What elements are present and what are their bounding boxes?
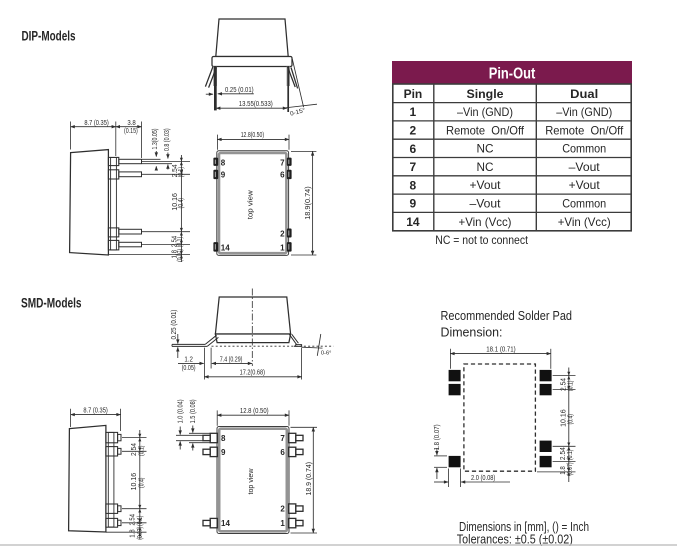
svg-text:Dimension:: Dimension: [441, 324, 503, 339]
svg-text:2.0 (0.08): 2.0 (0.08) [471, 475, 495, 482]
svg-text:(0.1): (0.1) [567, 450, 574, 461]
svg-text:2.54: 2.54 [131, 443, 138, 456]
svg-text:14: 14 [221, 519, 230, 528]
svg-text:+Vin (Vcc): +Vin (Vcc) [459, 215, 512, 229]
svg-text:1.8 (0.07): 1.8 (0.07) [434, 424, 441, 450]
svg-text:(0.1): (0.1) [177, 237, 184, 248]
svg-text:+Vout: +Vout [470, 178, 502, 192]
svg-text:14: 14 [406, 215, 420, 229]
svg-text:–Vin (GND): –Vin (GND) [556, 105, 612, 119]
svg-text:17.2(0.68): 17.2(0.68) [240, 369, 265, 376]
svg-text:(0.1): (0.1) [568, 381, 575, 392]
svg-text:1: 1 [280, 519, 285, 528]
svg-text:(0.07): (0.07) [137, 527, 144, 540]
svg-text:Recommended Solder Pad: Recommended Solder Pad [441, 308, 573, 323]
svg-text:Dual: Dual [570, 87, 598, 101]
svg-text:Remote On/Off: Remote On/Off [545, 123, 624, 137]
svg-text:Pin: Pin [404, 87, 423, 101]
svg-text:Remote On/Off: Remote On/Off [446, 123, 525, 137]
svg-text:1: 1 [280, 243, 285, 252]
svg-text:6: 6 [280, 448, 285, 457]
svg-text:8: 8 [410, 178, 417, 192]
svg-text:18.9 (0.74): 18.9 (0.74) [306, 462, 313, 496]
svg-text:3.8: 3.8 [127, 120, 135, 127]
svg-text:–Vout: –Vout [470, 197, 502, 211]
svg-text:12.8 (0.50): 12.8 (0.50) [240, 408, 269, 415]
svg-text:(0.4): (0.4) [138, 478, 145, 489]
svg-text:0.25 (0.01): 0.25 (0.01) [171, 310, 178, 340]
svg-text:1.3(0.05): 1.3(0.05) [152, 129, 159, 150]
svg-text:9: 9 [410, 197, 417, 211]
svg-text:DIP-Models: DIP-Models [22, 28, 76, 43]
svg-text:2.54: 2.54 [130, 514, 137, 526]
svg-text:(0.4): (0.4) [178, 198, 185, 209]
svg-text:(0.15): (0.15) [124, 128, 138, 135]
svg-text:SMD-Models: SMD-Models [21, 296, 82, 311]
svg-text:2: 2 [410, 124, 417, 138]
svg-text:7: 7 [280, 434, 285, 443]
svg-text:6: 6 [280, 171, 285, 180]
svg-text:–Vin (GND): –Vin (GND) [457, 105, 513, 119]
svg-text:–Vout: –Vout [569, 160, 601, 174]
svg-text:(0.4): (0.4) [568, 414, 575, 425]
svg-text:(0.1): (0.1) [138, 446, 145, 457]
svg-text:12.8(0.50): 12.8(0.50) [241, 132, 264, 139]
svg-text:NC: NC [477, 160, 494, 174]
svg-text:8.7 (0.35): 8.7 (0.35) [83, 408, 107, 415]
svg-text:+Vout: +Vout [569, 178, 601, 192]
svg-text:(0.1): (0.1) [178, 167, 185, 178]
svg-text:Common: Common [562, 197, 606, 211]
svg-text:7: 7 [280, 158, 285, 167]
svg-text:0-6°: 0-6° [321, 350, 332, 356]
svg-text:8.7 (0.35): 8.7 (0.35) [84, 120, 108, 127]
svg-text:18.9(0.74): 18.9(0.74) [305, 186, 312, 220]
svg-text:Single: Single [467, 87, 504, 101]
svg-text:13.55(0.533): 13.55(0.533) [239, 101, 273, 108]
svg-text:2: 2 [280, 505, 285, 514]
svg-text:14: 14 [221, 243, 230, 252]
svg-text:NC: NC [477, 142, 494, 156]
svg-text:6: 6 [410, 142, 417, 156]
svg-text:9: 9 [221, 171, 226, 180]
svg-text:(0.1): (0.1) [137, 516, 144, 527]
svg-text:0.8 (0.03): 0.8 (0.03) [164, 128, 171, 151]
svg-text:(0.05): (0.05) [182, 365, 196, 372]
svg-text:1: 1 [410, 105, 417, 119]
svg-text:Pin-Out: Pin-Out [489, 66, 536, 83]
svg-text:8: 8 [221, 434, 226, 443]
svg-text:1.2: 1.2 [184, 356, 193, 363]
svg-text:NC = not to connect: NC = not to connect [435, 235, 528, 247]
svg-text:top view: top view [248, 189, 255, 219]
svg-text:(0.07): (0.07) [567, 463, 574, 476]
svg-text:8: 8 [221, 158, 226, 167]
svg-text:1.0 (0.04): 1.0 (0.04) [177, 399, 184, 423]
svg-text:2.54: 2.54 [560, 447, 567, 460]
svg-text:2: 2 [280, 230, 285, 239]
svg-text:(0.07): (0.07) [177, 249, 184, 262]
svg-text:1.5 (0.08): 1.5 (0.08) [190, 399, 197, 423]
svg-text:2.54: 2.54 [560, 378, 567, 391]
svg-text:7: 7 [410, 160, 417, 174]
svg-text:9: 9 [221, 448, 226, 457]
svg-text:10.16: 10.16 [560, 409, 567, 427]
svg-text:18.1 (0.71): 18.1 (0.71) [486, 346, 515, 353]
svg-text:1.8: 1.8 [130, 529, 137, 538]
svg-text:0.25 (0.01): 0.25 (0.01) [225, 87, 254, 94]
svg-text:1.8: 1.8 [560, 466, 567, 475]
svg-text:Common: Common [562, 142, 606, 156]
svg-text:10.16: 10.16 [131, 473, 138, 491]
svg-text:7.4 (0.29): 7.4 (0.29) [220, 356, 243, 363]
svg-text:top view: top view [248, 468, 255, 495]
svg-text:+Vin (Vcc): +Vin (Vcc) [558, 215, 611, 229]
svg-text:0-15°: 0-15° [289, 107, 306, 118]
